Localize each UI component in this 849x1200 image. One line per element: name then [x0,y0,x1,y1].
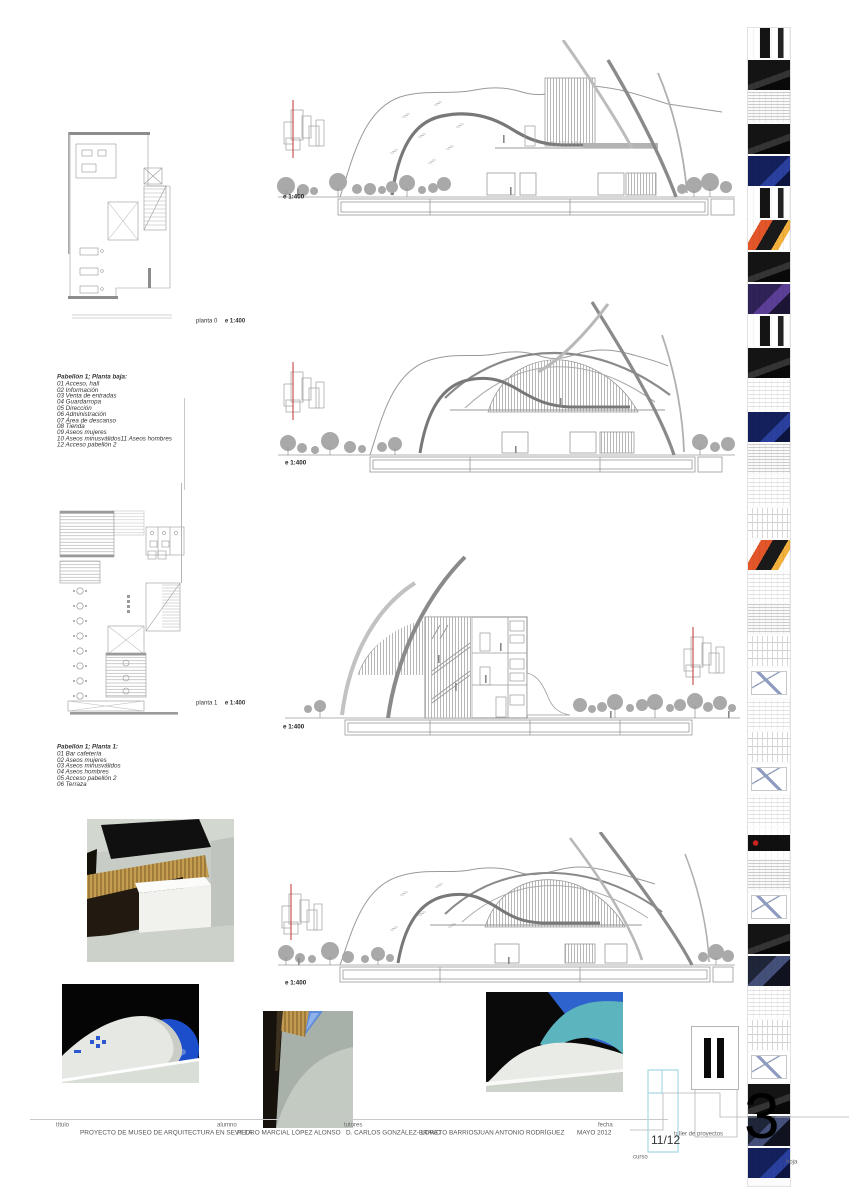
section-scale: e 1:400 [283,723,304,730]
titleblock-rule [30,1119,668,1120]
filmstrip-thumbnail [748,380,790,410]
filmstrip-thumbnail [748,764,790,794]
hill-outline [340,86,722,197]
render-canopy-sky [62,984,199,1083]
filmstrip-thumbnail [748,316,790,346]
floor-plan-1-drawing [50,483,185,715]
logo-bar-icon [704,1038,711,1078]
filmstrip-thumbnail [748,636,790,666]
render-interior-curve [263,1011,353,1128]
hoja-label: hoja [786,1158,797,1165]
elevation-2-scale: e 1:400 [285,459,306,466]
alumno-label: alumno [217,1121,237,1128]
site-sketch [684,627,724,685]
thumbnail-filmstrip [748,28,790,1186]
titleblock-step-outlines [630,1020,849,1195]
render-interior-hall [87,819,234,962]
filmstrip-thumbnail [748,828,790,858]
plan-1-label: planta 1 [196,699,217,706]
site-sketch [282,884,322,940]
site-sketch [284,100,324,158]
site-sketch [284,362,324,420]
filmstrip-thumbnail [748,60,790,90]
hoja-value: 3 [744,1086,780,1146]
legend-planta-baja-title: Pabellón 1; Planta baja: [57,374,213,380]
slide-form [527,673,570,715]
filmstrip-thumbnail [748,700,790,730]
tutores-value-3: JUAN ANTONIO RODRÍGUEZ [477,1129,564,1136]
plan-0-scale: e 1:400 [225,317,245,324]
section-drawing [280,555,745,740]
filmstrip-thumbnail [748,572,790,602]
hatched-block [545,78,595,146]
people-figures [610,711,730,718]
podium [338,199,734,215]
logo-bar-icon [717,1038,724,1078]
titulo-value: PROYECTO DE MUSEO DE ARQUITECTURA EN SEV… [80,1129,252,1136]
elevation-1-drawing [270,40,740,225]
legend-planta-1-title: Pabellón 1; Planta 1: [57,744,213,750]
elevation-2-drawing [270,300,740,480]
filmstrip-thumbnail [748,956,790,986]
filmstrip-thumbnail [748,220,790,250]
legend-item: 06 Terraza [57,781,213,787]
floor-plan-0-drawing [52,128,187,323]
filmstrip-thumbnail [748,156,790,186]
elevation-3-drawing [270,832,740,992]
fecha-label: fecha [598,1121,613,1128]
elevation-1-scale: e 1:400 [283,193,304,200]
podium [370,457,722,472]
filmstrip-thumbnail [748,540,790,570]
podium [340,967,733,982]
ground-floor-openings [502,432,634,453]
plan-1-caption: planta 1e 1:400 [196,699,245,706]
elevation-3-scale: e 1:400 [285,979,306,986]
plan-0-label: planta 0 [196,317,217,324]
filmstrip-thumbnail [748,188,790,218]
filmstrip-thumbnail [748,860,790,890]
filmstrip-thumbnail [748,508,790,538]
ground-floor-openings [495,944,627,963]
filmstrip-thumbnail [748,252,790,282]
filmstrip-thumbnail [748,668,790,698]
filmstrip-thumbnail [748,348,790,378]
tutores-value-2: LORETO BARRIOS [421,1129,478,1136]
filmstrip-thumbnail [748,476,790,506]
legend-planta-1: Pabellón 1; Planta 1: 01 Bar cafetería 0… [57,744,213,787]
filmstrip-thumbnail [748,892,790,922]
plan-0-caption: planta 0e 1:400 [196,317,245,324]
legend-item: 12 Acceso pabellón 2 [57,442,213,448]
filmstrip-thumbnail [748,732,790,762]
plan-1-scale: e 1:400 [225,699,245,706]
filmstrip-thumbnail [748,124,790,154]
filmstrip-thumbnail [748,444,790,474]
school-logo [691,1026,739,1090]
podium [345,720,692,735]
legend-planta-baja: Pabellón 1; Planta baja: 01 Acceso, hall… [57,374,213,448]
filmstrip-thumbnail [748,284,790,314]
render-roofscape-sky [486,992,623,1092]
ground-floor-openings [487,173,656,195]
reference-line [184,398,185,490]
trees [277,173,732,197]
fecha-value: MAYO 2012 [577,1129,611,1136]
alumno-value: PEDRO MARCIAL LÓPEZ ALONSO [237,1129,341,1136]
tutores-label: tutores [344,1121,362,1128]
filmstrip-thumbnail [748,796,790,826]
titulo-label: título [56,1121,69,1128]
tower-section [425,617,527,718]
filmstrip-thumbnail [748,988,790,1018]
presentation-sheet: planta 0e 1:400 Pabellón 1; Planta baja:… [0,0,849,1200]
filmstrip-thumbnail [748,92,790,122]
filmstrip-thumbnail [748,412,790,442]
curso-value: 11/12 [651,1133,680,1147]
filmstrip-thumbnail [748,604,790,634]
filmstrip-thumbnail [748,924,790,954]
filmstrip-thumbnail [748,28,790,58]
